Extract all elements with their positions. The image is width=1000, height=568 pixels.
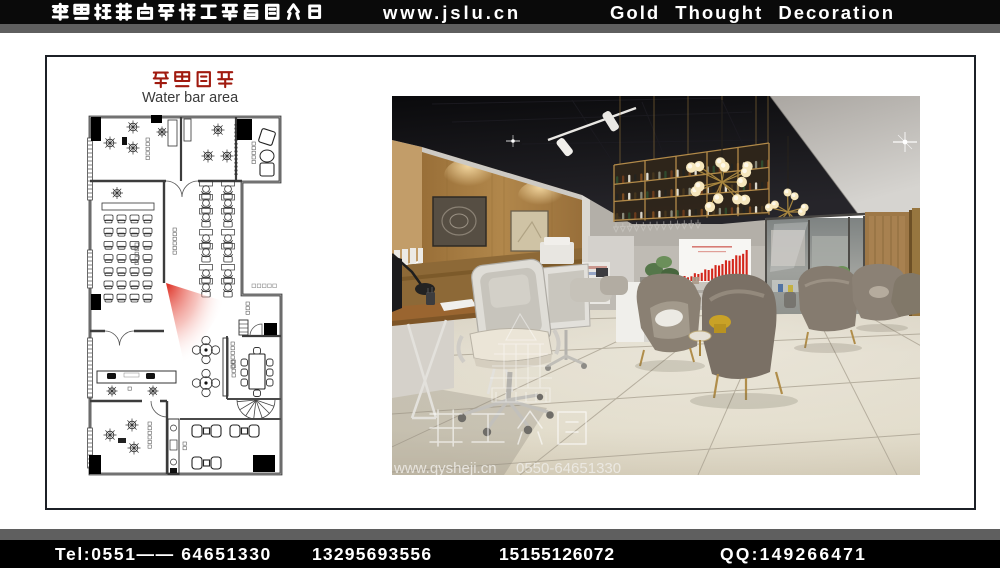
svg-text:0550-64651330: 0550-64651330 xyxy=(516,460,621,475)
svg-text:www.qysheji.cn: www.qysheji.cn xyxy=(393,460,497,475)
